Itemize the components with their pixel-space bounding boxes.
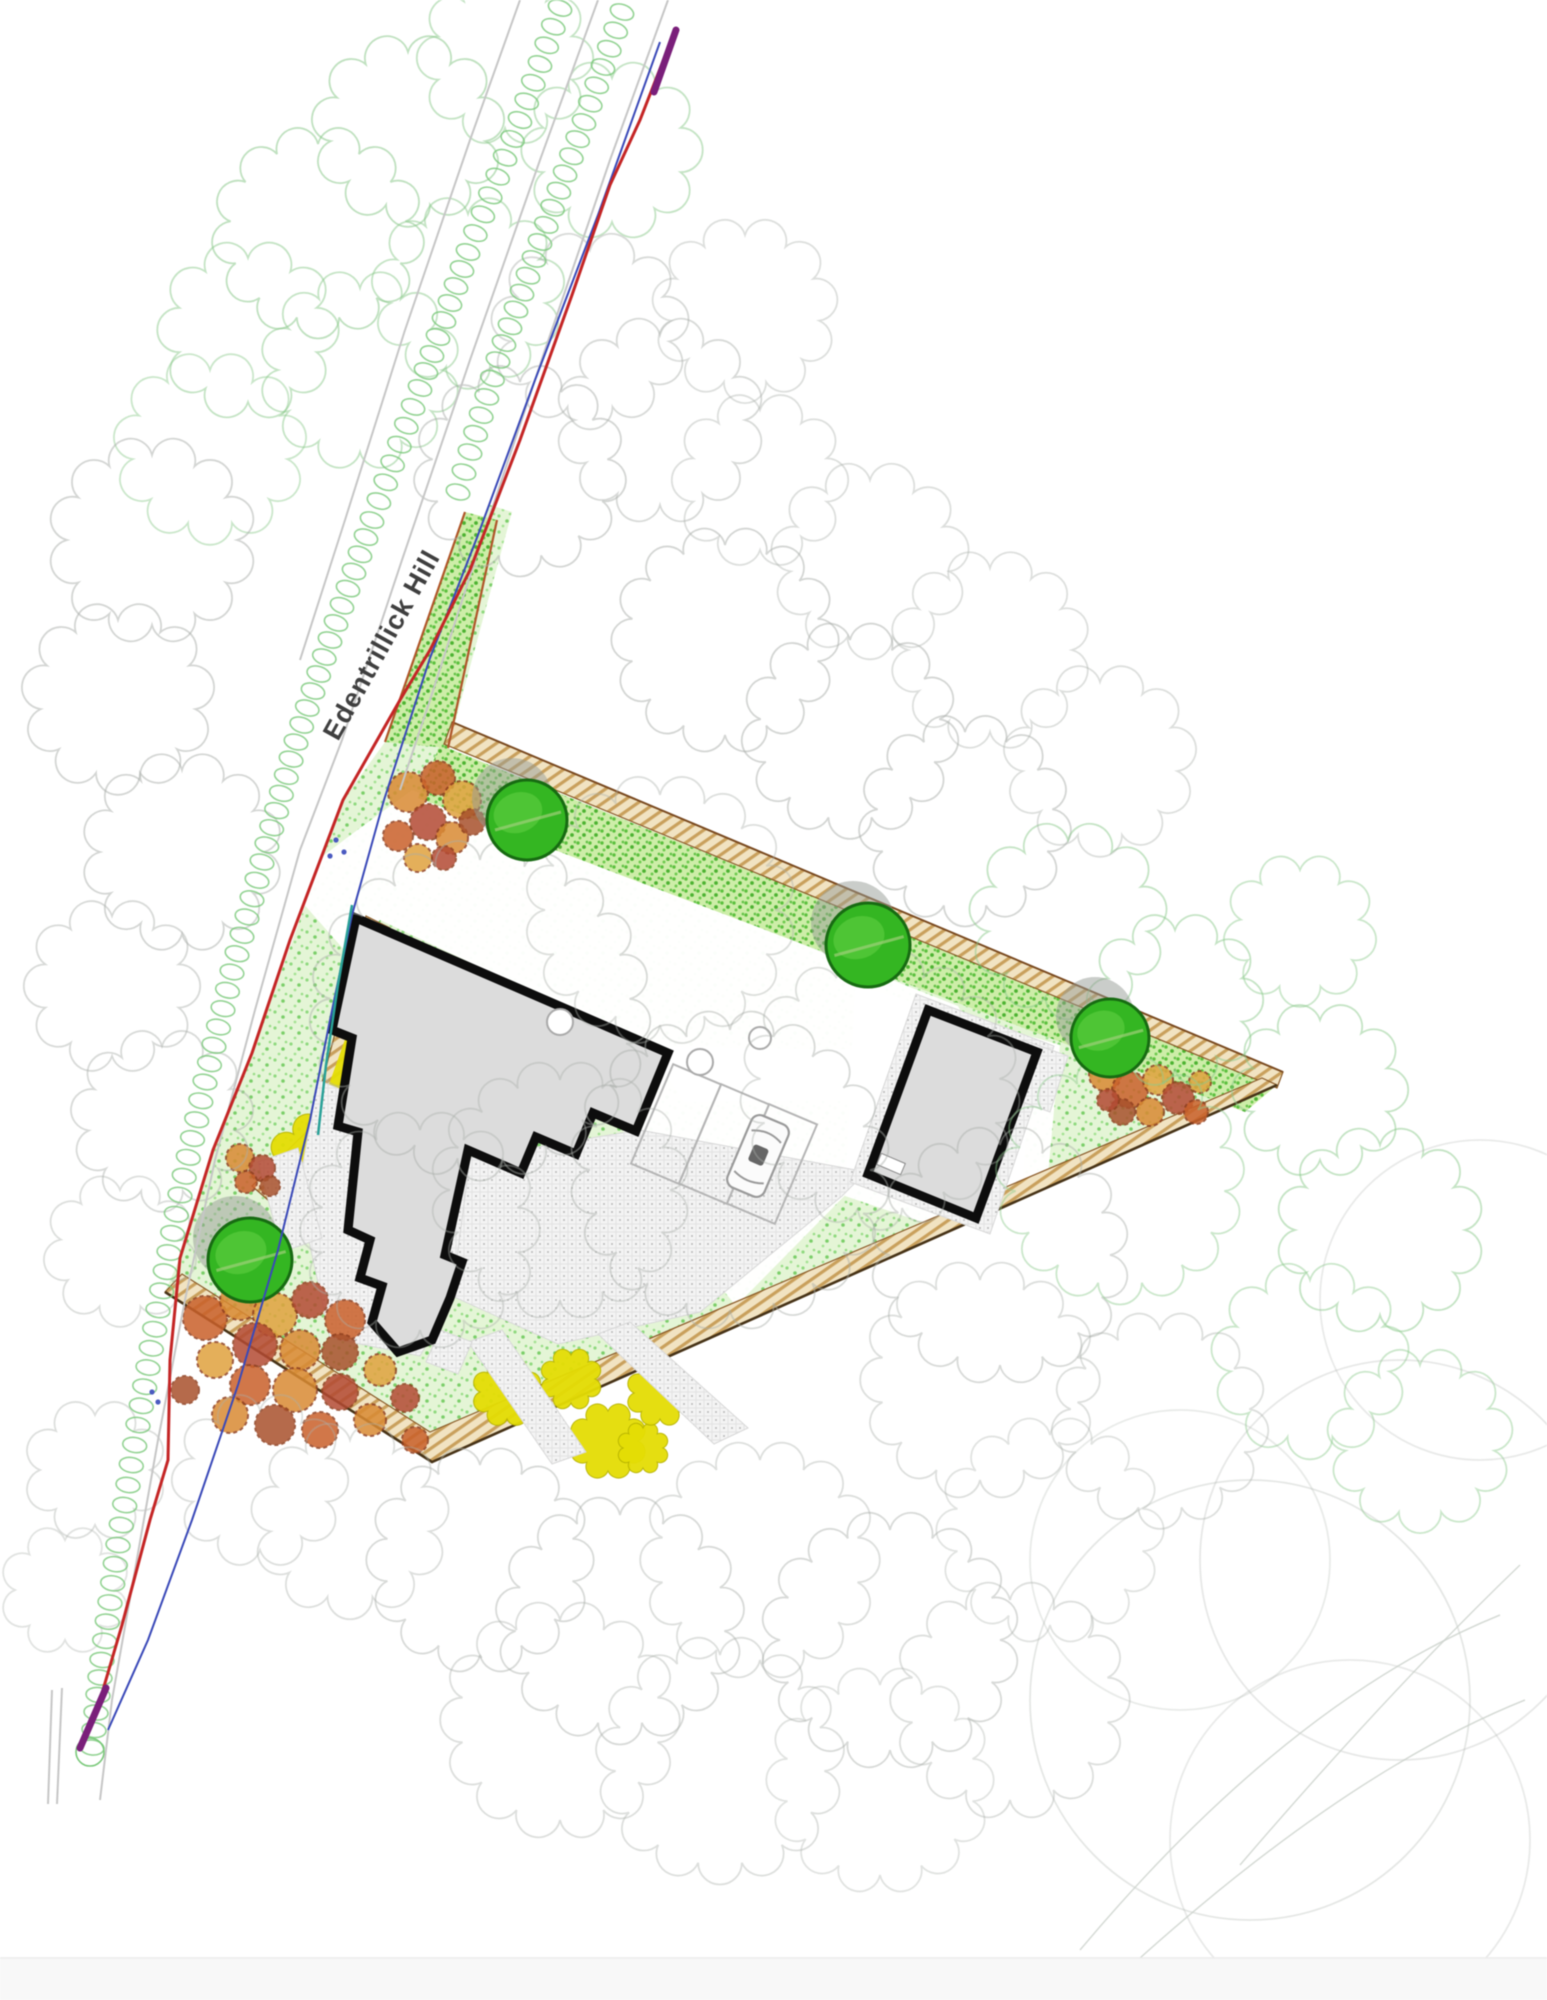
hedge-chain-link xyxy=(469,203,497,226)
hedge-chain-link xyxy=(479,368,506,389)
hedge-chain-link xyxy=(187,1091,214,1111)
hedge-chain-link xyxy=(94,1613,120,1631)
hedge-chain-link xyxy=(214,980,241,1000)
hedge-chain-link xyxy=(253,834,280,855)
hedge-chain-link xyxy=(328,595,356,617)
blue-marker-dot xyxy=(149,1389,154,1394)
hedge-chain-link xyxy=(238,888,265,909)
shrub-blob xyxy=(171,1376,199,1404)
hedge-chain-link xyxy=(316,629,344,651)
large-canopy-arc xyxy=(1320,1140,1547,1460)
hedge-chain-link xyxy=(179,1129,206,1149)
hedge-chain-link xyxy=(406,377,434,399)
hedge-chain-link xyxy=(156,1243,182,1262)
hedge-chain-link xyxy=(450,461,477,482)
canopy-outline xyxy=(312,36,504,227)
canopy-outline xyxy=(771,464,968,660)
hedge-chain-link xyxy=(386,433,414,455)
hedge-chain-link xyxy=(346,543,374,565)
hedge-chain-link xyxy=(160,1224,186,1243)
shrub-blob xyxy=(383,821,413,851)
shrub-blob xyxy=(292,1282,328,1318)
yard-circle xyxy=(687,1049,713,1075)
hedge-chain-link xyxy=(108,1516,134,1535)
canopy-outline xyxy=(653,220,838,403)
hedge-chain-link xyxy=(461,222,489,245)
hedge-chain-link xyxy=(205,1017,232,1037)
hedge-chain-link xyxy=(448,258,476,280)
hedge-chain-link xyxy=(334,578,362,600)
hedge-chain-link xyxy=(602,19,630,41)
canopy-outline xyxy=(27,1402,163,1538)
hedge-chain-link xyxy=(171,1166,198,1186)
canopy-outline xyxy=(521,63,702,238)
yard-circle xyxy=(547,1009,573,1035)
blue-marker-dot xyxy=(155,1399,160,1404)
hedge-chain-link xyxy=(268,783,295,804)
hedge-chain-link xyxy=(392,415,420,437)
shrub-blob xyxy=(260,1176,280,1196)
page-bottom-band xyxy=(0,1958,1547,2000)
hedge-chain-link xyxy=(288,714,316,736)
hedge-chain-link xyxy=(294,697,322,719)
canopy-outline xyxy=(611,529,838,752)
hedge-chain-link xyxy=(135,1358,161,1377)
hedge-chain-link xyxy=(365,490,393,512)
hedge-chain-link xyxy=(263,800,290,821)
hedge-chain-link xyxy=(583,74,611,96)
canopy-outline xyxy=(1279,1129,1482,1332)
shrub-blob xyxy=(197,1342,233,1378)
blue-marker-dot xyxy=(341,849,346,854)
canopy-outline xyxy=(766,1669,993,1892)
hedge-chain-link xyxy=(539,16,567,38)
road-edge-line xyxy=(57,1688,62,1804)
blue-marker-dot xyxy=(327,853,332,858)
hedge-chain-link xyxy=(484,165,512,188)
canopy-outline xyxy=(596,1638,844,1885)
hedge-chain-link xyxy=(142,1320,168,1339)
hedge-chain-link xyxy=(243,870,270,891)
hedge-chain-link xyxy=(105,1536,131,1554)
hedge-chain-link xyxy=(340,560,368,582)
contour-line xyxy=(1240,1565,1520,1865)
shrub-blob xyxy=(325,1300,365,1340)
hedge-chain-link xyxy=(418,343,446,365)
hedge-chain-link xyxy=(299,680,327,702)
hedge-chain-link xyxy=(506,109,534,132)
shrub-blob xyxy=(1184,1100,1208,1124)
shrub-blob xyxy=(322,1334,358,1370)
blue-marker-dot xyxy=(333,837,338,842)
canopy-outline xyxy=(1328,1350,1513,1533)
canopy-outline xyxy=(84,754,279,949)
shrub-blob xyxy=(280,1330,320,1370)
hedge-chain-link xyxy=(551,162,579,184)
hedge-chain-link xyxy=(502,298,530,320)
hedge-chain-link xyxy=(456,441,483,462)
shrub-blob xyxy=(322,1374,358,1410)
hedge-chain-link xyxy=(436,292,464,314)
shrub-blob xyxy=(1097,1089,1119,1111)
hedge-chain-link xyxy=(596,38,624,60)
hedge-chain-link xyxy=(490,332,518,354)
hedge-chain-link xyxy=(196,1054,223,1074)
hedge-chain-link xyxy=(444,481,471,502)
hedge-chain-link xyxy=(468,405,495,426)
canopy-outline xyxy=(157,243,338,418)
hedge-chain-link xyxy=(526,53,554,75)
canopy-outline xyxy=(366,1449,593,1672)
hedge-chain-link xyxy=(476,184,504,207)
canopy-outline xyxy=(414,366,626,577)
canopy-outline xyxy=(417,0,593,143)
hedge-chain-link xyxy=(122,1436,148,1455)
hedge-chain-link xyxy=(570,111,598,133)
hedge-chain-link xyxy=(519,72,547,94)
hedge-chain-link xyxy=(546,0,574,19)
hedge-chain-link xyxy=(163,1205,189,1224)
hedge-chain-link xyxy=(278,749,305,770)
existing-tree-canopies xyxy=(3,0,1547,2000)
hedge-chain-link xyxy=(358,509,386,531)
hedge-chain-link xyxy=(183,1110,210,1130)
hedge-chain-link xyxy=(514,265,542,287)
shrub-blob xyxy=(391,1384,419,1412)
large-canopy-arc xyxy=(1170,1660,1530,2000)
hedge-chain-link xyxy=(125,1416,151,1435)
canopy-outline xyxy=(114,354,306,545)
canopy-outline xyxy=(763,1513,1018,1768)
hedge-chain-link xyxy=(442,275,470,297)
shrub-blob xyxy=(354,1404,386,1436)
hedge-chain-link xyxy=(564,128,592,150)
hedge-chain-link xyxy=(533,34,561,56)
canopy-outline xyxy=(44,1176,196,1326)
hedge-chain-link xyxy=(372,471,400,493)
hedge-chain-link xyxy=(545,179,573,201)
canopy-outline xyxy=(1224,856,1376,1006)
hedge-chain-link xyxy=(175,1147,202,1167)
shrub-blob xyxy=(364,1354,396,1386)
hedge-chain-link xyxy=(454,241,482,263)
hedge-chain-link xyxy=(558,145,586,167)
shrub-blob xyxy=(1136,1098,1164,1126)
hedge-chain-link xyxy=(118,1456,144,1475)
purple-boundary-tip xyxy=(654,30,676,92)
hedge-chain-link xyxy=(100,1574,126,1592)
road-edge-line xyxy=(48,1690,52,1804)
hedge-chain-link xyxy=(258,817,285,838)
hedge-chain-link xyxy=(219,962,246,982)
road-edge-line xyxy=(400,0,668,790)
shrub-blob xyxy=(255,1405,295,1445)
hedge-chain-link xyxy=(462,423,489,444)
canopy-outline xyxy=(22,604,214,795)
canopy-outline xyxy=(672,395,848,565)
contour-line xyxy=(1080,1615,1500,1950)
hedge-chain-link xyxy=(210,999,237,1019)
canopy-outline xyxy=(372,198,564,389)
shrub-blob xyxy=(235,1171,257,1193)
hedge-chain-link xyxy=(192,1072,219,1092)
hedge-chain-link xyxy=(526,231,554,253)
canopy-outline xyxy=(262,272,457,467)
hedge-chain-link xyxy=(399,396,427,418)
hedge-chain-link xyxy=(412,360,440,382)
canopy-outline xyxy=(640,1443,880,1678)
hedge-chain-link xyxy=(352,526,380,548)
hedge-chain-link xyxy=(223,943,250,964)
hedge-chain-link xyxy=(322,612,350,634)
canopy-outline xyxy=(892,552,1087,747)
hedge-chain-link xyxy=(424,326,452,348)
hedge-chain-link xyxy=(115,1476,141,1495)
hedge-chain-link xyxy=(273,766,300,787)
hedge-chain-link xyxy=(97,1593,123,1611)
hedge-chain-link xyxy=(305,663,333,685)
hedge-chain-link xyxy=(201,1035,228,1055)
site-plan-drawing: Edentrillick Hill xyxy=(0,0,1547,2000)
site-plan-page: Edentrillick Hill xyxy=(0,0,1547,2000)
hedge-chain-link xyxy=(608,1,636,23)
canopy-outline xyxy=(440,1603,680,1838)
hedge-chain-link xyxy=(112,1496,138,1515)
hedge-chain-link xyxy=(496,315,524,337)
large-canopy-arc xyxy=(1030,1410,1330,1710)
hedge-chain-link xyxy=(311,646,339,668)
canopy-outline xyxy=(24,901,200,1071)
hedge-chain-link xyxy=(138,1339,164,1358)
hedge-chain-link xyxy=(282,732,309,753)
